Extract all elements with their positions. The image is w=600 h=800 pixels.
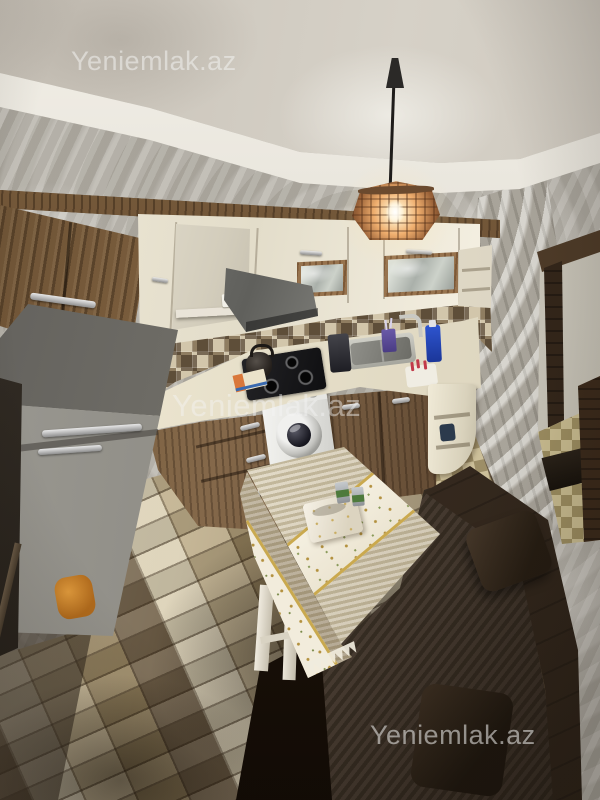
lamp-bulb — [386, 200, 404, 224]
spice-jar — [335, 481, 351, 504]
watermark-center: Yeniemlak.az — [172, 388, 361, 424]
jar-label — [352, 494, 365, 502]
faucet — [399, 313, 423, 339]
photo-canvas: Yeniemlak.az Yeniemlak.az Yeniemlak.az — [0, 0, 600, 800]
item-on-shelf — [439, 423, 456, 441]
utensil-cup — [381, 329, 397, 353]
dish-soap-bottle — [425, 325, 442, 363]
kettle-handle — [250, 344, 274, 357]
tissue-box-slot — [311, 501, 346, 518]
bottle-cap — [429, 320, 436, 327]
spice-jar — [351, 487, 365, 507]
watermark-bottom-right: Yeniemlak.az — [370, 720, 536, 751]
watermark-top-left: Yeniemlak.az — [71, 46, 237, 77]
jar-label — [336, 489, 350, 498]
dark-jar — [327, 333, 351, 373]
orange-bucket — [53, 573, 98, 621]
